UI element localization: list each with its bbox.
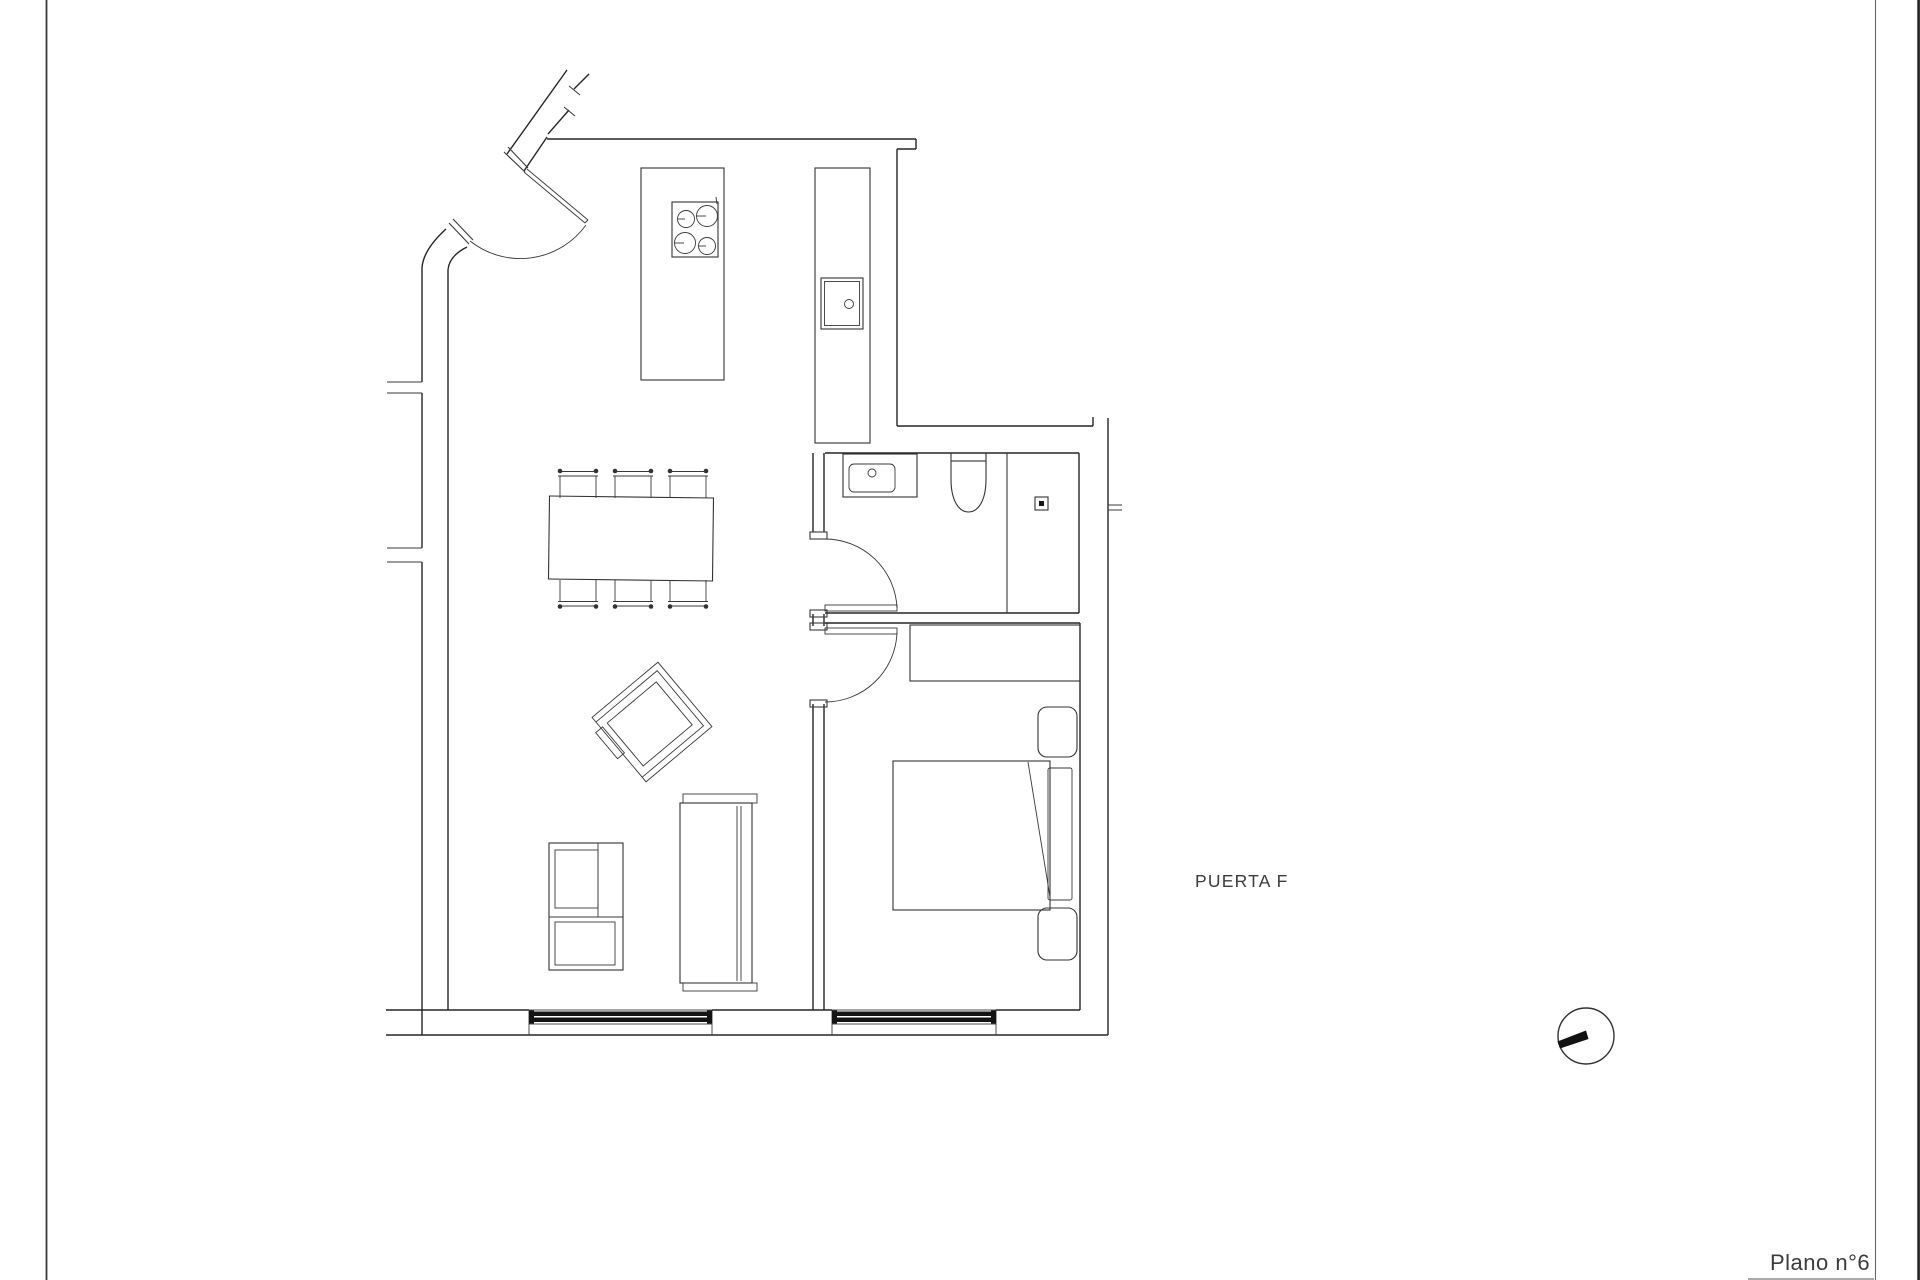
entry-diagonal-wall-inner-a (574, 74, 589, 89)
double-bed (893, 761, 1072, 910)
bathroom-door-leaf (825, 605, 897, 611)
bedroom-door (825, 628, 897, 702)
armchair (587, 662, 712, 786)
dining-chairs-bottom (558, 580, 709, 609)
right-wall-stub (1108, 505, 1122, 510)
bathroom-door (825, 539, 897, 611)
floor-plan-drawing: PUERTA F Plano n°6 (0, 0, 1920, 1280)
bed-headboard (1048, 768, 1072, 900)
toilet-icon (951, 453, 986, 512)
bed-sheet-fold-line (1028, 762, 1050, 897)
dining-table (548, 496, 713, 581)
entry-door-jamb-bottom (449, 219, 473, 244)
exterior-walls (386, 70, 1122, 1035)
vanity-sink-icon (843, 454, 917, 497)
window-living (529, 1010, 712, 1035)
entry-diagonal-wall-inner-c (524, 137, 547, 171)
bathroom-walls (825, 453, 1079, 613)
wardrobe (910, 625, 1080, 681)
window-bedroom (832, 1010, 996, 1035)
chair-icon (613, 469, 654, 498)
shower-drain-icon (1035, 497, 1048, 510)
bedroom-door-leaf (825, 628, 897, 634)
armchair-footrest (596, 727, 625, 759)
tv-console (680, 794, 757, 991)
chair-icon (558, 469, 599, 498)
storage-cabinet (549, 843, 623, 970)
entry-diagonal-wall-outer (507, 70, 567, 154)
bedroom (825, 623, 1080, 1010)
bathroom-door-swing-arc (825, 539, 897, 608)
lounge-area (549, 662, 757, 991)
dining-chairs-top (558, 469, 709, 498)
bedroom-door-swing-arc (825, 632, 897, 702)
nightstand-top (1038, 707, 1077, 757)
bathroom (825, 453, 1079, 613)
neighbour-jamb-ticks (564, 86, 580, 116)
chair-icon (613, 580, 654, 609)
plan-number-label: Plano n°6 (1770, 1250, 1870, 1275)
left-wall-outer (422, 229, 446, 1035)
jamb-tick-1 (810, 532, 827, 539)
door-label: PUERTA F (1195, 871, 1289, 891)
entry-diagonal-wall-inner-b (548, 110, 569, 134)
entry-door-jamb-top (504, 147, 528, 172)
kitchen-sink-icon (821, 278, 863, 329)
nightstand-bottom (1038, 908, 1077, 960)
left-wall-inner (448, 247, 467, 1010)
sheet-frame (47, 0, 1919, 1280)
entry-door-swing-arc (470, 225, 586, 259)
corridor-wall (810, 453, 827, 1010)
plan-sheet: PUERTA F Plano n°6 (0, 0, 1920, 1280)
entry-door-leaf (524, 169, 588, 223)
left-wall-stubs (387, 382, 422, 562)
orientation-symbol (1558, 1008, 1615, 1064)
kitchen-island (641, 168, 724, 380)
top-wall (547, 139, 916, 149)
entrance-door (449, 147, 588, 259)
dining-area (548, 469, 713, 609)
orientation-hand-icon (1558, 1031, 1589, 1049)
chair-icon (668, 469, 709, 498)
chair-icon (668, 580, 709, 609)
cooktop-icon (672, 197, 718, 257)
kitchen-counter (815, 168, 870, 443)
chair-icon (558, 580, 599, 609)
kitchen-right-wall (897, 149, 1093, 426)
kitchen (641, 168, 870, 443)
